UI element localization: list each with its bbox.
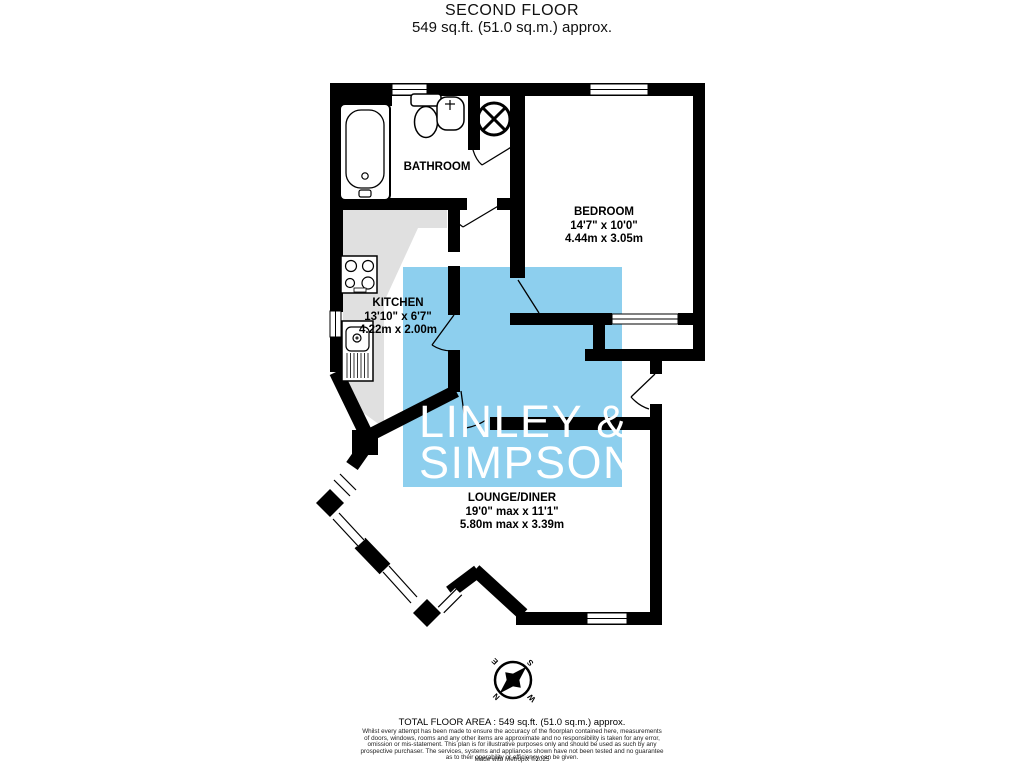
metropix-credit: Made with Metropix ©2025 <box>475 756 550 763</box>
wall-kitchen-a <box>448 198 460 252</box>
window-bay-c <box>383 566 417 603</box>
label-kitchen: KITCHEN 13'10" x 6'7" 4.22m x 2.00m <box>359 297 437 338</box>
compass-icon: N E S W <box>472 639 554 721</box>
watermark-line2: SIMPSON <box>419 442 637 484</box>
kitchen-name: KITCHEN <box>359 297 437 311</box>
door-lounge-right <box>631 374 655 409</box>
page-title: SECOND FLOOR <box>445 2 579 20</box>
bathtub <box>340 104 390 200</box>
window-bay-b <box>333 513 364 546</box>
kitchen-dims-metric: 4.22m x 2.00m <box>359 324 437 338</box>
wall-hall-connector <box>593 313 605 353</box>
lounge-dims-imperial: 19'0" max x 11'1" <box>460 506 564 520</box>
bedroom-name: BEDROOM <box>565 206 643 220</box>
wall-entrance-stub <box>650 361 662 374</box>
compass-w: W <box>526 692 538 704</box>
label-bathroom: BATHROOM <box>404 161 471 175</box>
page-subtitle: 549 sq.ft. (51.0 sq.m.) approx. <box>412 19 612 36</box>
window-bay-d <box>438 589 462 613</box>
bedroom-dims-metric: 4.44m x 3.05m <box>565 233 643 247</box>
compass-e: E <box>489 656 500 667</box>
label-lounge: LOUNGE/DINER 19'0" max x 11'1" 5.80m max… <box>460 492 564 533</box>
floorplan-drawing: N E S W <box>0 0 1024 768</box>
label-bedroom: BEDROOM 14'7" x 10'0" 4.44m x 3.05m <box>565 206 643 247</box>
wall-bathroom-return <box>497 198 510 210</box>
window-bay-a <box>334 474 356 496</box>
hob <box>341 256 377 293</box>
bedroom-dims-imperial: 14'7" x 10'0" <box>565 220 643 234</box>
wall-corner-bottom-vertex <box>413 599 441 627</box>
wall-diag-chunk <box>360 543 385 569</box>
total-floor-area: TOTAL FLOOR AREA : 549 sq.ft. (51.0 sq.m… <box>399 717 626 728</box>
kitchen-dims-imperial: 13'10" x 6'7" <box>359 311 437 325</box>
wall-kitchen-c <box>448 350 460 392</box>
wall-diag-peak-right <box>475 570 523 614</box>
basin <box>437 97 464 130</box>
wall-lounge-right <box>650 404 662 625</box>
wall-junction-block <box>352 430 378 455</box>
wall-bedroom-left <box>510 83 525 278</box>
compass-s: S <box>525 657 536 668</box>
wall-kitchen-b <box>448 266 460 315</box>
lounge-dims-metric: 5.80m max x 3.39m <box>460 519 564 533</box>
wall-right-outer <box>693 83 705 361</box>
floorplan-page: N E S W SECOND FLOOR 549 sq.ft. (51.0 sq… <box>0 0 1024 768</box>
lounge-name: LOUNGE/DINER <box>460 492 564 506</box>
wall-bedroom-bottom-corner <box>678 313 695 325</box>
wall-left-mid <box>330 336 343 372</box>
extractor-symbol <box>478 103 510 135</box>
